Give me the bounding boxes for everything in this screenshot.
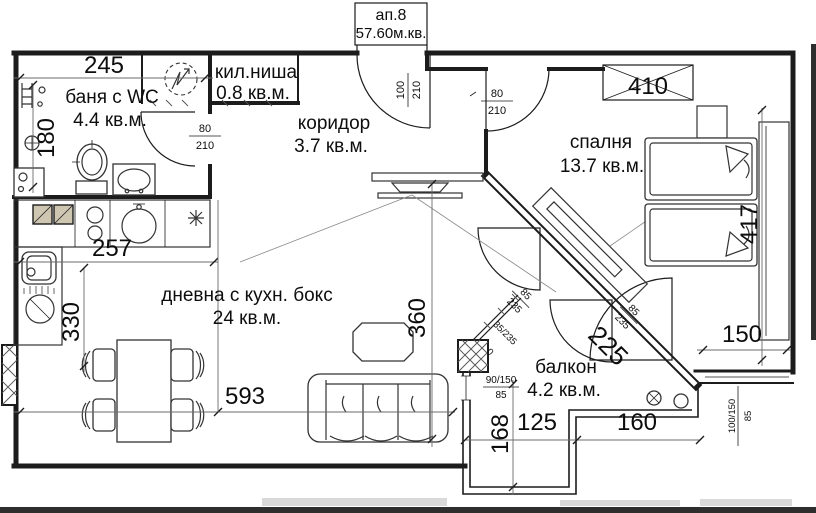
column-balcony — [458, 336, 488, 372]
shower-tray — [14, 168, 44, 197]
washing-machine — [24, 286, 54, 323]
bedroom-width-dim: 410 — [628, 73, 668, 100]
chair — [171, 349, 204, 381]
room-name: спалня — [570, 132, 632, 153]
dim-360: 360 — [404, 298, 431, 338]
dim-417: 417 — [736, 204, 763, 244]
dim-257: 257 — [92, 235, 132, 262]
sofa — [308, 374, 448, 442]
terrace-door-1-label: 85 235 — [502, 282, 538, 318]
drain-symbol-icon — [647, 391, 661, 405]
bedroom-door-width: 80 — [491, 88, 503, 100]
nightstand — [697, 106, 727, 138]
bed — [645, 138, 757, 200]
apartment-id: ап.8 — [376, 7, 407, 24]
dim-125: 125 — [517, 409, 557, 436]
room-label-bedroom: спалня 13.7 кв.м. — [560, 132, 644, 177]
room-name: балкон — [535, 357, 597, 378]
room-area: 13.7 кв.м. — [560, 156, 644, 177]
entrance-door-width: 100 — [395, 81, 407, 99]
room-label-bath: баня с WC 4.4 кв.м. — [65, 87, 159, 131]
chair — [82, 349, 115, 381]
room-name: баня с WC — [65, 87, 159, 108]
room-area: 3.7 кв.м. — [294, 136, 368, 157]
pipe-symbol-icon — [674, 394, 688, 408]
balcony-window-size: 90/150 — [486, 375, 517, 386]
chair — [82, 399, 115, 431]
toilet — [72, 140, 107, 194]
dim-180: 180 — [33, 118, 60, 158]
bedroom-door-height: 210 — [488, 105, 506, 117]
dim-593: 593 — [225, 383, 265, 410]
shower-icon — [22, 83, 45, 108]
room-label-balcony: балкон 4.2 кв.м. — [527, 357, 601, 401]
dim-160: 160 — [617, 409, 657, 436]
bath-door-arc — [141, 112, 195, 166]
vent-fan-icon — [165, 63, 197, 95]
floor-plan: ап.8 57.60м.кв. — [0, 0, 816, 513]
room-name: дневна с кухн. бокс — [161, 285, 332, 306]
south-window-sill: 85 — [743, 411, 754, 422]
dining-table — [117, 340, 171, 442]
room-area: 4.2 кв.м. — [527, 380, 601, 401]
south-window-size: 100/150 — [727, 399, 738, 433]
south-window-label: 100/150 85 — [727, 386, 754, 446]
apartment-title-box: ап.8 57.60м.кв. — [355, 3, 427, 45]
column-left-wall — [2, 345, 17, 405]
bath-door-width: 80 — [199, 123, 211, 135]
room-label-corridor: коридор 3.7 кв.м. — [294, 113, 370, 157]
entrance-door-label: 100 210 — [395, 73, 423, 107]
chair — [171, 399, 204, 431]
room-label-living: дневна с кухн. бокс 24 кв.м. — [161, 285, 332, 329]
bedroom-door-label: 80 210 — [470, 88, 513, 117]
room-name: коридор — [298, 113, 371, 134]
dim-150: 150 — [722, 321, 762, 348]
entrance-door-height: 210 — [411, 81, 423, 99]
dim-168: 168 — [487, 414, 514, 454]
bath-door-height: 210 — [196, 140, 214, 152]
room-area: 24 кв.м. — [213, 308, 281, 329]
terrace-door-fan-1 — [478, 228, 540, 290]
electric-panel — [33, 205, 73, 224]
room-label-niche: кил.ниша 0.8 кв.м. — [215, 62, 298, 104]
tv-viewing-lines — [240, 195, 556, 292]
tv-unit — [372, 173, 483, 198]
kitchen-sink — [22, 252, 56, 284]
bedroom-south-wall-window — [695, 371, 793, 383]
lamp-star-icon — [188, 210, 204, 226]
corner-window-size: 35/235 — [490, 319, 518, 347]
wash-basin — [113, 164, 155, 195]
room-area: 0.8 кв.м. — [216, 83, 290, 104]
bed-console — [759, 122, 789, 340]
balcony-window-label: 90/150 85 — [483, 375, 519, 401]
dim-330: 330 — [58, 302, 85, 342]
apartment-total-area: 57.60м.кв. — [356, 25, 427, 42]
dim-245: 245 — [84, 52, 124, 79]
bedroom-door-arc — [486, 69, 549, 131]
room-area: 4.4 кв.м. — [73, 110, 147, 131]
room-name: кил.ниша — [215, 62, 298, 83]
corner-window-label: 35/235 0 — [484, 319, 519, 358]
floor-plan-drawing: ап.8 57.60м.кв. — [0, 0, 816, 513]
dim-410-box: 410 — [603, 65, 693, 100]
bath-door-label: 80 210 — [189, 123, 221, 152]
balcony-window-sill: 85 — [495, 390, 507, 401]
